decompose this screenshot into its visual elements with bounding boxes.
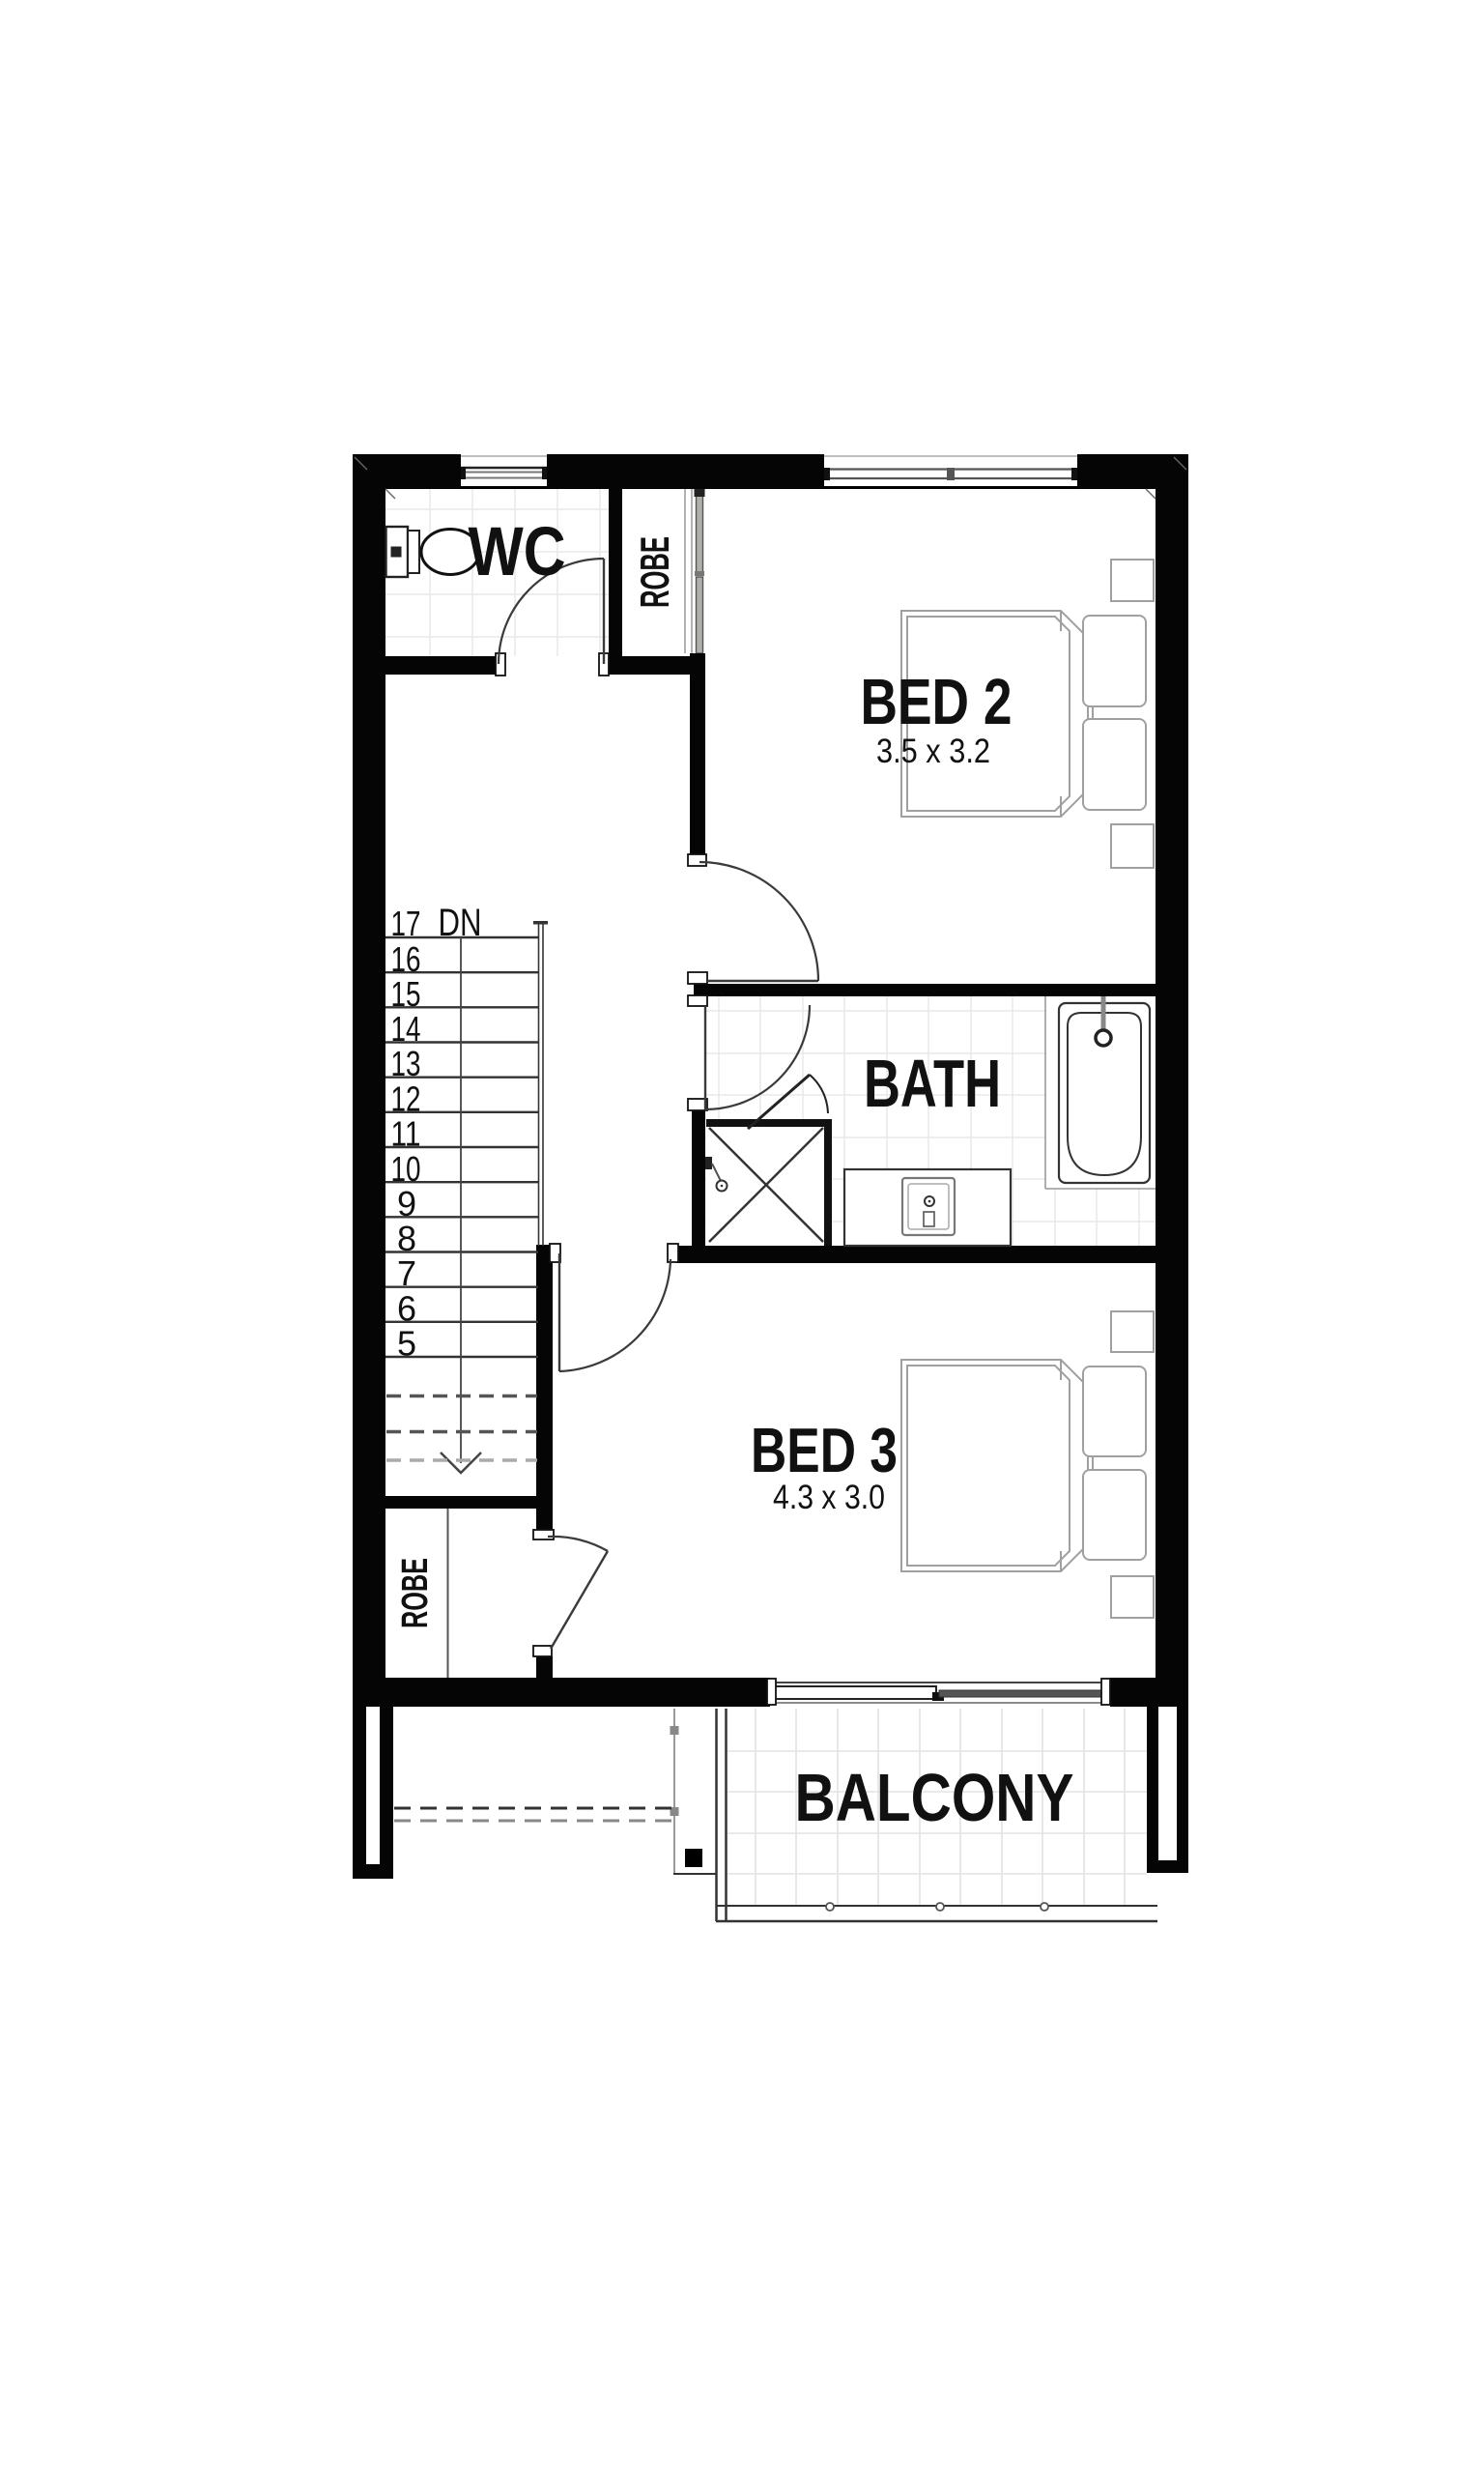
svg-text:15: 15 — [391, 974, 421, 1014]
svg-text:16: 16 — [391, 939, 421, 979]
svg-text:6: 6 — [397, 1289, 416, 1329]
svg-text:BATH: BATH — [864, 1046, 1001, 1121]
svg-text:4.3 x 3.0: 4.3 x 3.0 — [773, 1479, 885, 1516]
svg-text:BALCONY: BALCONY — [795, 1760, 1074, 1835]
svg-text:10: 10 — [391, 1149, 421, 1189]
svg-text:13: 13 — [391, 1044, 421, 1083]
svg-text:BED 2: BED 2 — [861, 666, 1013, 738]
svg-text:9: 9 — [397, 1184, 416, 1223]
svg-text:WC: WC — [469, 514, 566, 590]
svg-text:ROBE: ROBE — [632, 536, 677, 608]
svg-text:BED 3: BED 3 — [751, 1415, 898, 1485]
svg-text:17: 17 — [391, 904, 421, 943]
svg-text:8: 8 — [397, 1219, 416, 1258]
svg-text:12: 12 — [391, 1079, 421, 1119]
svg-text:14: 14 — [391, 1009, 421, 1049]
svg-text:ROBE: ROBE — [395, 1558, 436, 1628]
svg-text:7: 7 — [397, 1253, 416, 1293]
svg-text:DN: DN — [439, 902, 482, 944]
svg-text:5: 5 — [397, 1324, 416, 1364]
svg-text:11: 11 — [391, 1114, 421, 1154]
svg-text:3.5 x 3.2: 3.5 x 3.2 — [876, 733, 990, 770]
